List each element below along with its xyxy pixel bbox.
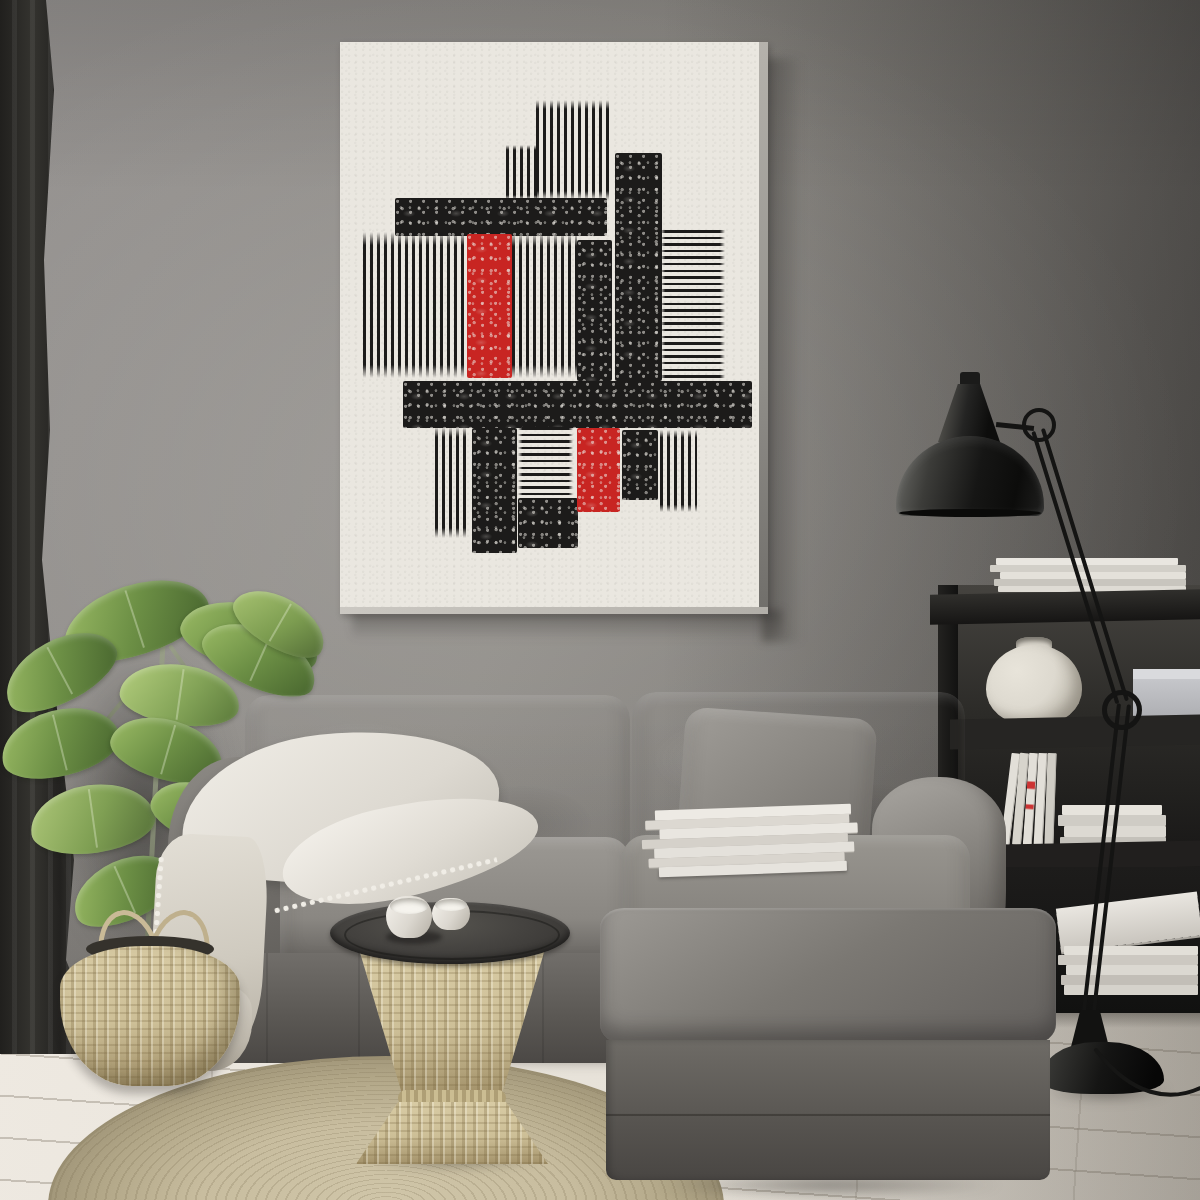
woven-belly-basket xyxy=(60,928,240,1090)
canvas-edge xyxy=(759,42,768,614)
leaning-panel xyxy=(1056,892,1200,953)
ottoman xyxy=(592,902,1064,1198)
shelf-top xyxy=(930,589,1200,625)
book xyxy=(1058,815,1166,826)
art-red-rectangle xyxy=(467,234,512,378)
art-stripes xyxy=(518,427,573,500)
book xyxy=(994,579,1186,586)
magazine xyxy=(1064,946,1198,955)
canvas-shadow xyxy=(762,58,810,642)
leaf xyxy=(26,777,159,862)
art-black-bar xyxy=(577,240,612,381)
books-on-seat xyxy=(641,803,868,883)
ottoman-seam xyxy=(606,1114,1050,1116)
abstract-wall-art-canvas xyxy=(340,42,768,614)
basket-body xyxy=(60,946,240,1086)
rattan-side-table xyxy=(320,890,580,1180)
book xyxy=(1064,826,1166,837)
art-black-bar xyxy=(622,430,658,500)
art-black-bar xyxy=(395,198,607,236)
cup xyxy=(432,898,470,930)
art-black-bar xyxy=(518,498,578,548)
canvas-shadow xyxy=(352,610,782,640)
magazine-pile-on-floor xyxy=(1058,890,1200,1010)
magazine xyxy=(1058,955,1198,965)
art-stripes xyxy=(660,430,697,512)
magazine xyxy=(1061,975,1198,985)
cup xyxy=(386,896,432,938)
art-stripes xyxy=(363,232,467,378)
book xyxy=(1044,753,1056,845)
books-on-top-shelf xyxy=(990,558,1190,592)
book xyxy=(1000,572,1186,579)
book xyxy=(996,558,1178,565)
magazine xyxy=(1064,985,1198,995)
art-black-bar xyxy=(403,381,752,428)
book xyxy=(1062,805,1162,815)
art-stripes xyxy=(435,427,470,538)
ottoman-cushion xyxy=(600,908,1056,1044)
ottoman-base xyxy=(606,1040,1050,1180)
art-stripes xyxy=(536,100,612,200)
art-black-bar xyxy=(615,153,662,381)
table-body-lower xyxy=(352,1102,552,1164)
art-stripes xyxy=(660,230,725,380)
art-red-rectangle xyxy=(577,428,620,512)
living-room-photo xyxy=(0,0,1200,1200)
storage-box xyxy=(1133,669,1200,679)
art-stripes xyxy=(506,145,540,200)
book xyxy=(990,565,1186,572)
magazine xyxy=(1066,965,1198,975)
art-stripes xyxy=(512,233,577,378)
art-black-bar xyxy=(472,428,517,553)
table-body-upper xyxy=(356,952,548,1094)
canvas-edge xyxy=(340,607,768,614)
